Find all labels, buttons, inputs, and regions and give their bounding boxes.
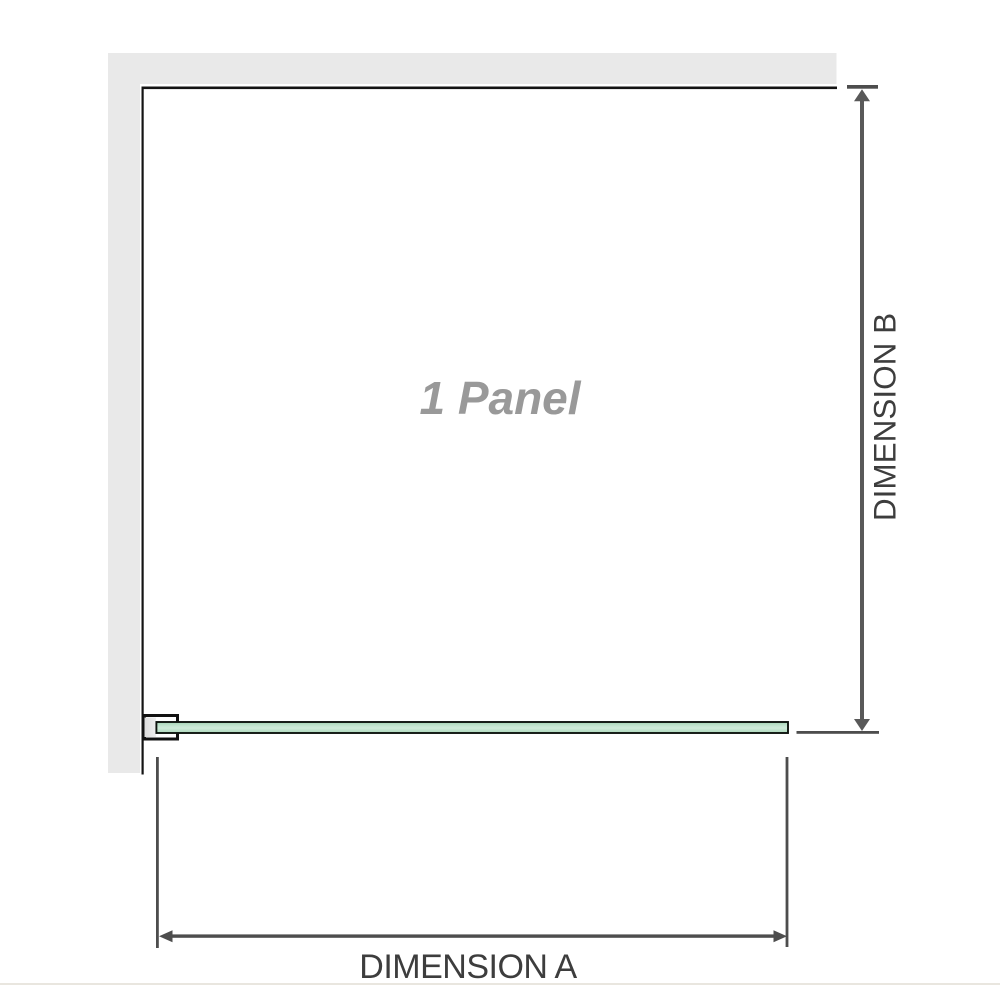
svg-text:DIMENSION B: DIMENSION B <box>867 313 903 521</box>
svg-text:DIMENSION A: DIMENSION A <box>359 948 577 986</box>
svg-text:1 Panel: 1 Panel <box>419 372 581 424</box>
